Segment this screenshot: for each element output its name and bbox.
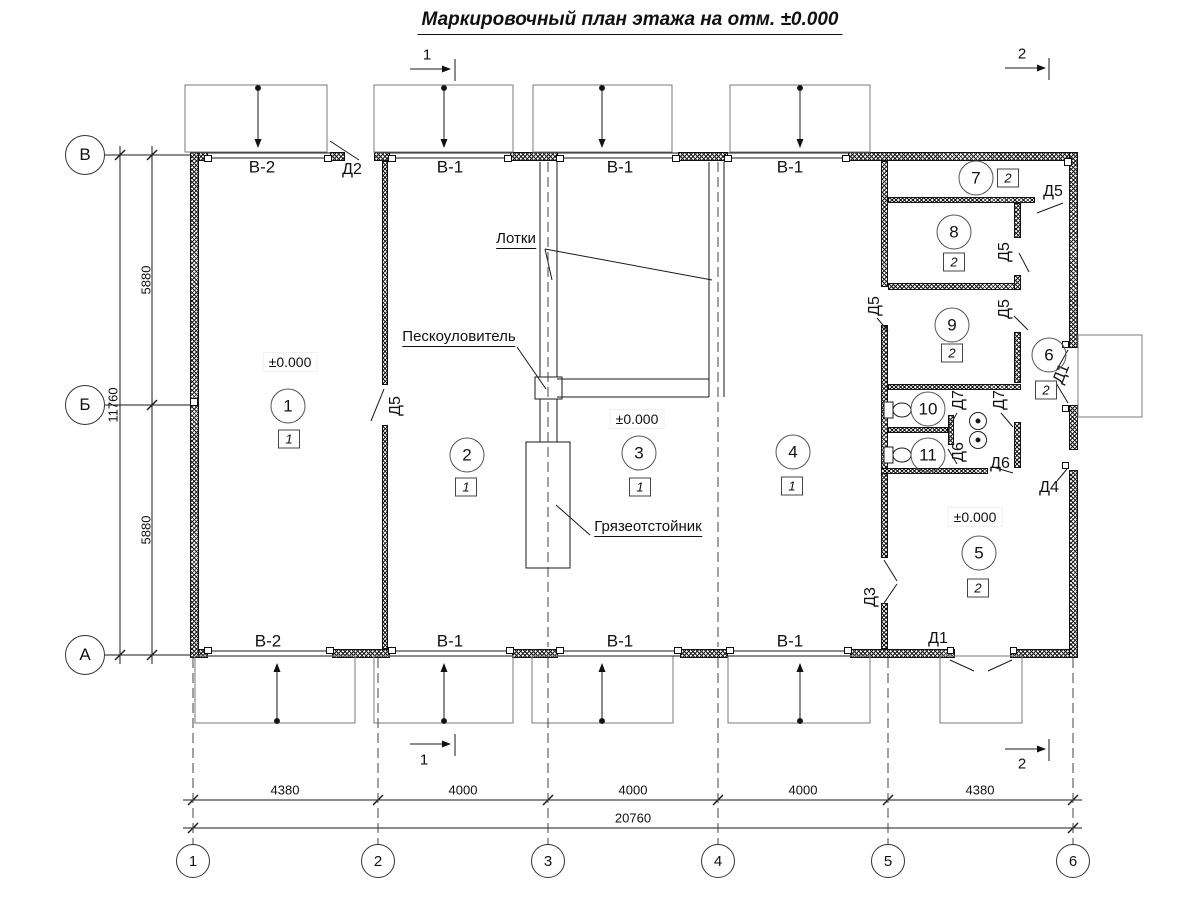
room-6-type: 2 (1035, 381, 1057, 400)
room-4-type: 1 (781, 477, 803, 496)
gate-label: В-1 (607, 159, 633, 176)
door-label: Д7 (951, 390, 967, 410)
room-9-number: 9 (935, 308, 970, 343)
elevation-mark: ±0.000 (264, 353, 317, 371)
gate-label: В-1 (607, 633, 633, 650)
door-label: Д7 (992, 390, 1008, 410)
annotation-sand-trap: Пескоуловитель (402, 329, 515, 347)
room-4-number: 4 (776, 435, 811, 470)
section-mark: 2 (1018, 47, 1026, 62)
grid-bubble-6: 6 (1056, 844, 1090, 878)
room-9-type: 2 (941, 344, 963, 363)
floor-plan-drawing: Маркировочный план этажа на отм. ±0.000 … (0, 0, 1200, 900)
annotation-mud-settler: Грязеотстойник (594, 519, 702, 537)
room-8-number: 8 (937, 215, 972, 250)
door-label: Д4 (1039, 480, 1059, 496)
gate-label: В-2 (249, 159, 275, 176)
room-1-type: 1 (278, 430, 300, 449)
elevation-mark: ±0.000 (949, 508, 1002, 526)
gate-label: В-1 (437, 633, 463, 650)
grid-bubble-a: А (65, 635, 105, 675)
gate-label: В-1 (777, 633, 803, 650)
dim-label: 4000 (449, 784, 478, 797)
room-8-type: 2 (943, 253, 965, 272)
grid-bubble-3: 3 (531, 844, 565, 878)
grid-bubble-b: Б (65, 385, 105, 425)
dim-label: 4000 (619, 784, 648, 797)
room-6-number: 6 (1032, 338, 1067, 373)
door-label: Д5 (1043, 184, 1063, 200)
room-2-number: 2 (450, 438, 485, 473)
dim-label: 20760 (615, 812, 651, 825)
room-7-type: 2 (997, 169, 1019, 188)
room-11-number: 11 (911, 438, 946, 473)
dim-label: 5880 (140, 516, 153, 545)
dim-label: 4000 (789, 784, 818, 797)
door-label: Д2 (342, 162, 362, 178)
door-label: Д5 (867, 296, 883, 316)
door-label: Д3 (863, 587, 879, 607)
door-label: Д5 (388, 396, 404, 416)
room-2-type: 1 (455, 478, 477, 497)
room-5-type: 2 (967, 579, 989, 598)
dim-label: 11760 (107, 387, 120, 422)
door-label: Д6 (951, 442, 967, 462)
grid-bubble-4: 4 (701, 844, 735, 878)
grid-bubble-v: В (65, 135, 105, 175)
gate-label: В-1 (777, 159, 803, 176)
labels-layer: В-2В-1В-1В-1В-2В-1В-1В-1Д2Д5Д5Д5Д5Д5Д7Д7… (0, 0, 1200, 900)
door-label: Д5 (997, 242, 1013, 262)
room-1-number: 1 (271, 389, 306, 424)
room-3-number: 3 (622, 436, 657, 471)
grid-bubble-1: 1 (176, 844, 210, 878)
grid-bubble-5: 5 (871, 844, 905, 878)
room-7-number: 7 (959, 161, 994, 196)
door-label: Д1 (928, 631, 948, 647)
grid-bubble-2: 2 (361, 844, 395, 878)
elevation-mark: ±0.000 (611, 410, 664, 428)
door-label: Д6 (990, 456, 1010, 472)
room-5-number: 5 (962, 536, 997, 571)
gate-label: В-2 (255, 633, 281, 650)
drawing-title: Маркировочный план этажа на отм. ±0.000 (418, 9, 843, 35)
dim-label: 4380 (966, 784, 995, 797)
room-10-number: 10 (911, 392, 946, 427)
dim-label: 4380 (271, 784, 300, 797)
dim-label: 5880 (140, 266, 153, 295)
room-3-type: 1 (629, 478, 651, 497)
door-label: Д5 (997, 299, 1013, 319)
section-mark: 1 (423, 48, 431, 63)
section-mark: 1 (420, 753, 428, 768)
gate-label: В-1 (437, 159, 463, 176)
annotation-trays: Лотки (496, 231, 536, 249)
section-mark: 2 (1018, 757, 1026, 772)
